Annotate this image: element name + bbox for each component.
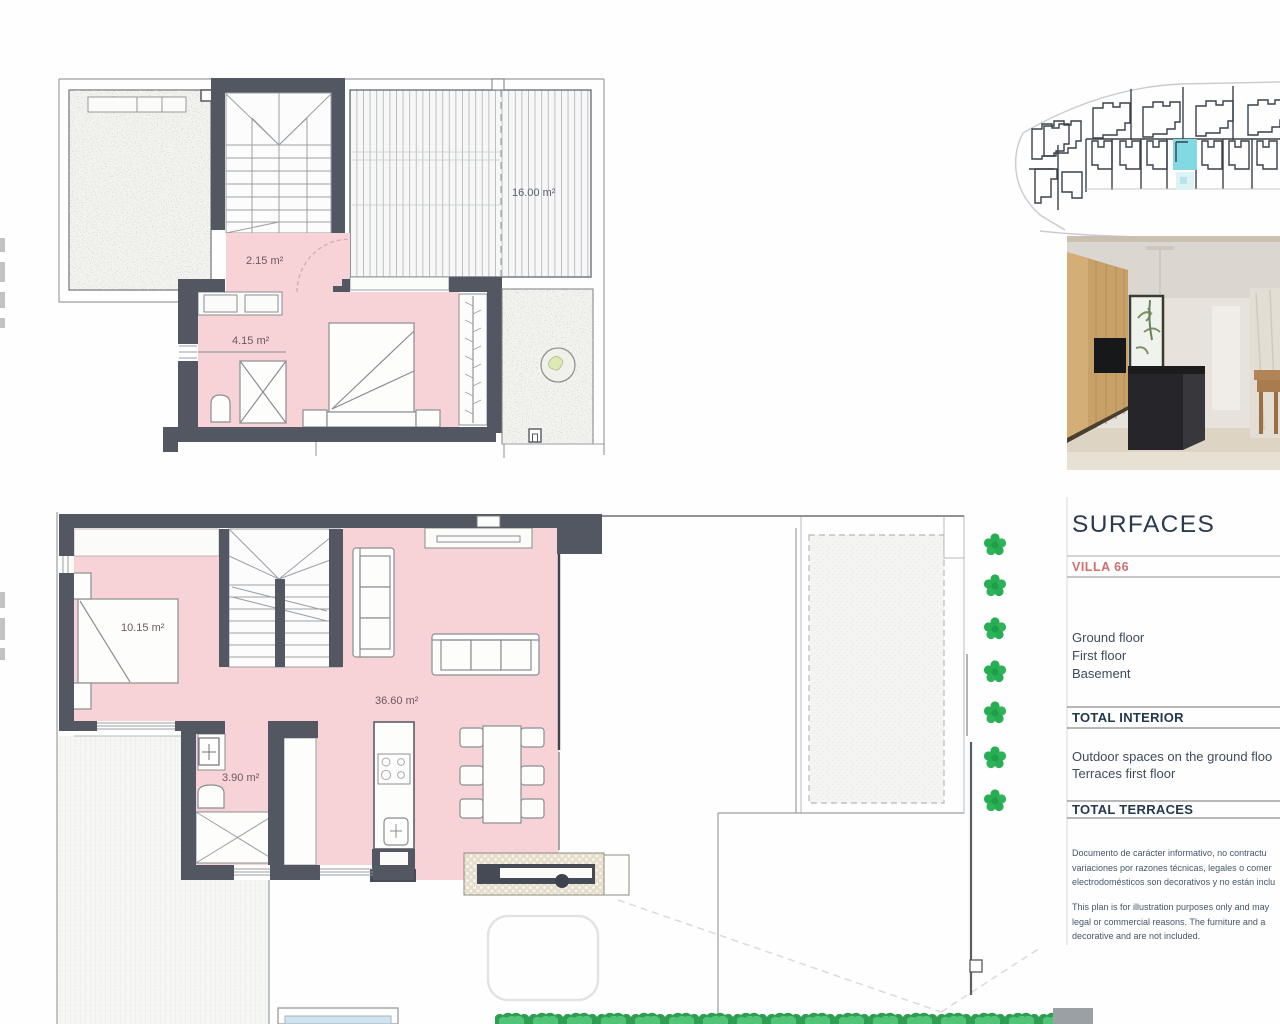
svg-text:decorative and are not include: decorative and are not included. (1072, 931, 1200, 941)
svg-text:electrodomésticos son decorati: electrodomésticos son decorativos y no e… (1072, 877, 1275, 887)
svg-text:36.60 m²: 36.60 m² (375, 695, 419, 707)
svg-text:legal or commercial reasons. T: legal or commercial reasons. The furnitu… (1072, 917, 1265, 927)
svg-text:This plan is for illustration: This plan is for illustration purposes o… (1072, 902, 1270, 912)
svg-text:TOTAL TERRACES: TOTAL TERRACES (1072, 802, 1193, 817)
svg-text:Outdoor spaces on the ground f: Outdoor spaces on the ground floo (1072, 749, 1272, 764)
svg-text:VILLA 66: VILLA 66 (1072, 560, 1129, 574)
svg-text:10.15 m²: 10.15 m² (121, 622, 165, 634)
svg-text:16.00 m²: 16.00 m² (512, 187, 556, 199)
svg-text:variaciones por razones técnic: variaciones por razones técnicas, legale… (1072, 863, 1272, 873)
svg-text:2.15 m²: 2.15 m² (246, 255, 284, 267)
svg-text:Documento de carácter informat: Documento de carácter informativo, no co… (1072, 848, 1267, 858)
svg-text:First floor: First floor (1072, 648, 1127, 663)
svg-text:3.90 m²: 3.90 m² (222, 772, 260, 784)
svg-text:TOTAL INTERIOR: TOTAL INTERIOR (1072, 710, 1184, 725)
svg-text:Ground floor: Ground floor (1072, 630, 1145, 645)
svg-text:SURFACES: SURFACES (1072, 511, 1215, 538)
svg-text:Terraces first floor: Terraces first floor (1072, 766, 1176, 781)
svg-text:Basement: Basement (1072, 666, 1131, 681)
svg-text:4.15 m²: 4.15 m² (232, 335, 270, 347)
